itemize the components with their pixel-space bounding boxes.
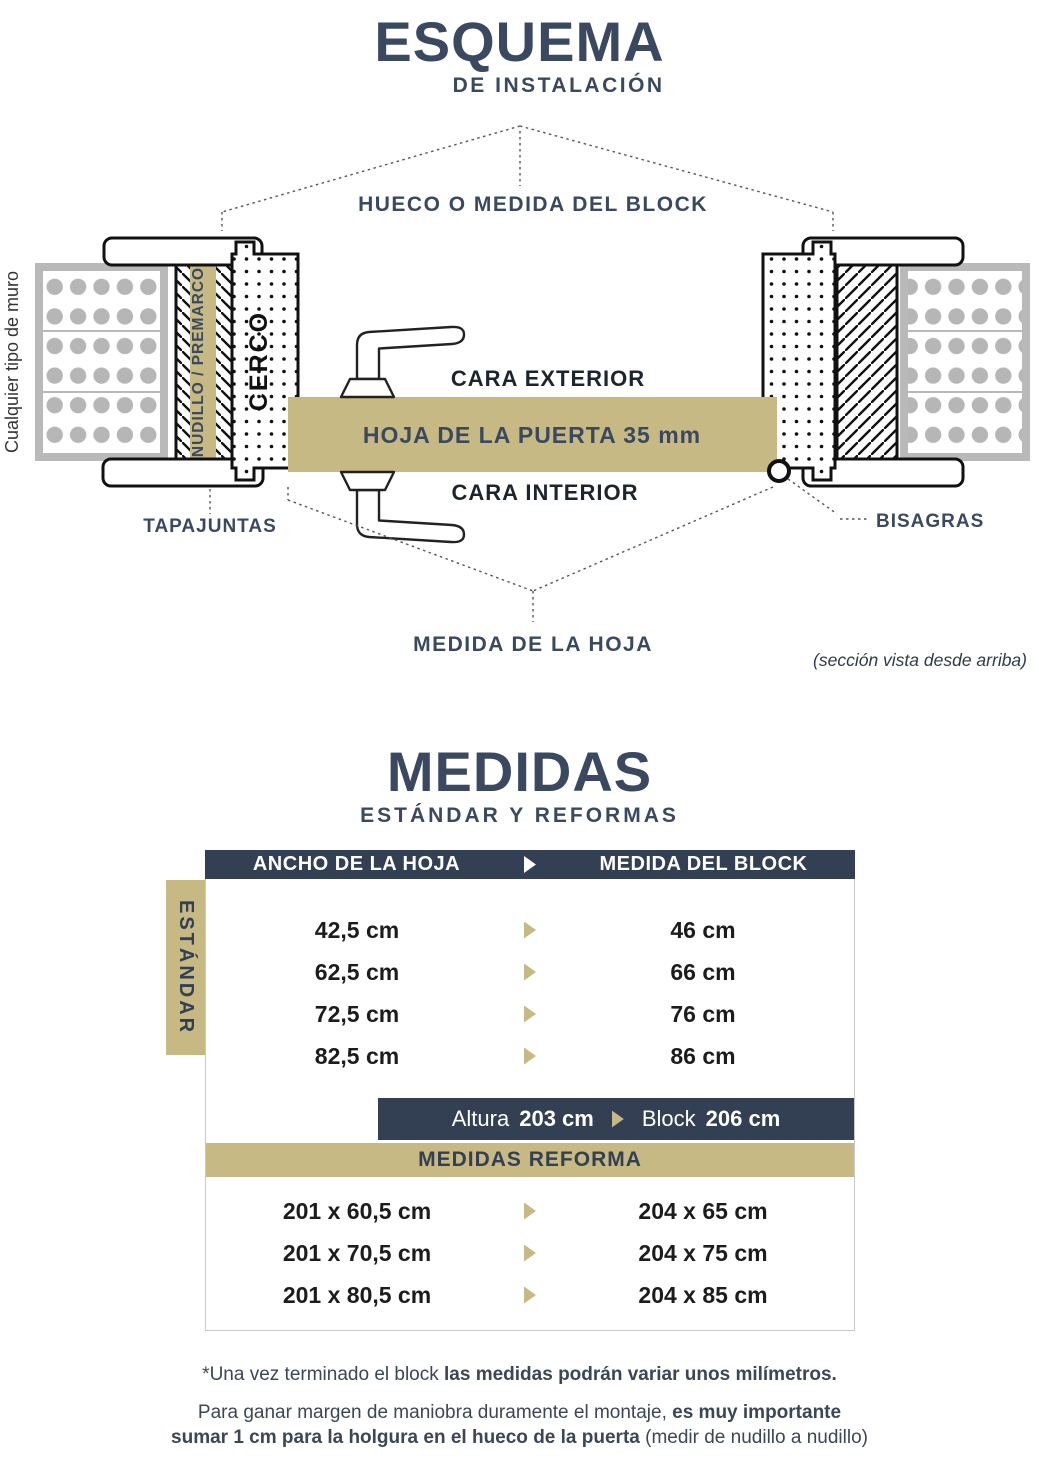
- wall-type-label: Cualquier tipo de muro: [2, 271, 22, 453]
- block-value: 76 cm: [552, 1001, 854, 1028]
- estandar-tab: ESTÁNDAR: [166, 880, 205, 1055]
- cara-exterior-label: CARA EXTERIOR: [451, 366, 645, 391]
- tapajuntas-label: TAPAJUNTAS: [143, 516, 277, 537]
- table-row: 42,5 cm 46 cm: [206, 909, 854, 951]
- block-value: 66 cm: [552, 959, 854, 986]
- block-value: 204 x 85 cm: [552, 1282, 854, 1309]
- arrow-icon: [612, 1111, 624, 1128]
- measures-table: ESTÁNDAR ANCHO DE LA HOJA MEDIDA DEL BLO…: [205, 850, 855, 1331]
- footnote-text-bold: las medidas podrán variar unos milímetro…: [444, 1364, 837, 1385]
- footnote-line-2: Para ganar margen de maniobra duramente …: [0, 1400, 1039, 1450]
- table-row: 82,5 cm 86 cm: [206, 1035, 854, 1077]
- reforma-rows: 201 x 60,5 cm 204 x 65 cm 201 x 70,5 cm …: [206, 1177, 854, 1330]
- header-ancho-hoja: ANCHO DE LA HOJA: [205, 853, 508, 876]
- table-row: 72,5 cm 76 cm: [206, 993, 854, 1035]
- arrow-icon: [524, 964, 536, 981]
- footnote-text-bold: es muy importante: [672, 1402, 841, 1423]
- block-value: 204 x 75 cm: [552, 1240, 854, 1267]
- medida-hoja-label: MEDIDA DE LA HOJA: [413, 633, 653, 656]
- interior-handle-icon: [341, 472, 464, 542]
- block-value: 204 x 65 cm: [552, 1198, 854, 1225]
- block-height-value: 206 cm: [706, 1106, 781, 1132]
- measures-table-body: 42,5 cm 46 cm 62,5 cm 66 cm 72,5 cm 76 c…: [205, 879, 855, 1331]
- block-value: 46 cm: [552, 917, 854, 944]
- hoja-value: 201 x 70,5 cm: [206, 1240, 508, 1267]
- medidas-title: MEDIDAS: [360, 744, 679, 800]
- right-wall: [900, 263, 1030, 461]
- arrow-icon: [524, 1287, 536, 1304]
- hoja-value: 72,5 cm: [206, 1001, 508, 1028]
- arrow-icon: [524, 922, 536, 939]
- measures-table-header: ANCHO DE LA HOJA MEDIDA DEL BLOCK: [205, 850, 855, 879]
- nudillo-premarco-label: NUDILLO / PREMARCO: [190, 267, 207, 457]
- door-leaf-label: HOJA DE LA PUERTA 35 mm: [363, 422, 701, 448]
- hueco-block-label: HUECO O MEDIDA DEL BLOCK: [358, 193, 708, 216]
- arrow-icon: [524, 1006, 536, 1023]
- footnote-text: (medir de nudillo a nudillo): [645, 1427, 868, 1448]
- hinge-icon: [769, 461, 789, 481]
- exterior-handle-icon: [341, 327, 464, 397]
- bisagras-label: BISAGRAS: [876, 511, 984, 532]
- footnotes: *Una vez terminado el block las medidas …: [0, 1362, 1039, 1463]
- medidas-title-block: MEDIDAS ESTÁNDAR Y REFORMAS: [0, 744, 1039, 828]
- right-premarco-hatch: [837, 262, 897, 462]
- arrow-icon: [524, 1245, 536, 1262]
- arrow-icon: [524, 1203, 536, 1220]
- altura-label: Altura: [452, 1106, 509, 1132]
- infographic-page: ESQUEMA DE INSTALACIÓN: [0, 0, 1039, 1466]
- table-row: 62,5 cm 66 cm: [206, 951, 854, 993]
- section-view-note: (sección vista desde arriba): [813, 650, 1027, 671]
- medidas-subtitle: ESTÁNDAR Y REFORMAS: [360, 804, 679, 828]
- hoja-value: 42,5 cm: [206, 917, 508, 944]
- left-wall: [35, 263, 168, 461]
- table-row: 201 x 60,5 cm 204 x 65 cm: [206, 1190, 854, 1232]
- altura-value: 203 cm: [519, 1106, 594, 1132]
- medidas-reforma-header: MEDIDAS REFORMA: [206, 1143, 854, 1177]
- hoja-value: 62,5 cm: [206, 959, 508, 986]
- table-row: 201 x 80,5 cm 204 x 85 cm: [206, 1274, 854, 1316]
- installation-diagram: HUECO O MEDIDA DEL BLOCK NUDIL: [0, 0, 1039, 690]
- header-medida-block: MEDIDA DEL BLOCK: [552, 853, 855, 876]
- arrow-icon: [524, 1048, 536, 1065]
- hoja-value: 201 x 80,5 cm: [206, 1282, 508, 1309]
- block-label: Block: [642, 1106, 696, 1132]
- cerco-label: CERCO: [245, 311, 273, 411]
- footnote-text-bold: sumar 1 cm para la holgura en el hueco d…: [171, 1427, 645, 1448]
- altura-block-bar: Altura 203 cm Block 206 cm: [378, 1098, 854, 1140]
- footnote-line-1: *Una vez terminado el block las medidas …: [0, 1362, 1039, 1387]
- footnote-text: *Una vez terminado el block: [202, 1364, 444, 1385]
- hoja-value: 201 x 60,5 cm: [206, 1198, 508, 1225]
- footnote-text: Para ganar margen de maniobra duramente …: [198, 1402, 672, 1423]
- arrow-icon: [524, 856, 536, 873]
- block-value: 86 cm: [552, 1043, 854, 1070]
- hoja-value: 82,5 cm: [206, 1043, 508, 1070]
- table-row: 201 x 70,5 cm 204 x 75 cm: [206, 1232, 854, 1274]
- cara-interior-label: CARA INTERIOR: [452, 480, 639, 505]
